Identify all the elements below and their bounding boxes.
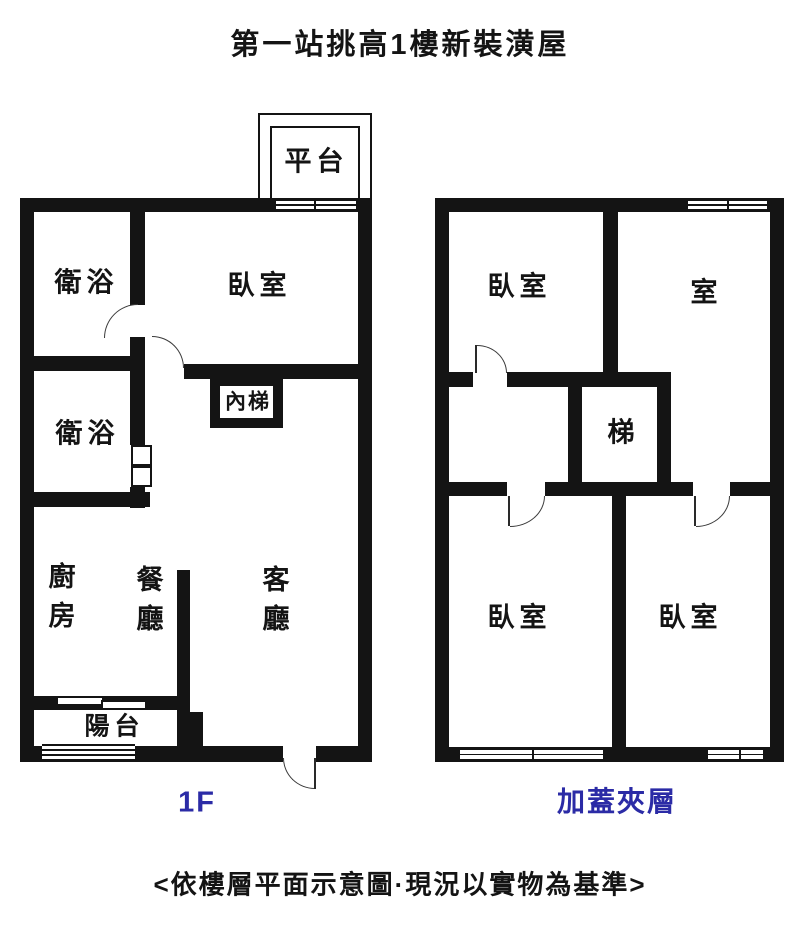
window-mz-top <box>688 199 767 211</box>
wall-dining-living-partition <box>177 570 190 746</box>
balcony-window-pane-left <box>56 696 104 706</box>
wall-mz-bottom-rooms-separator <box>612 496 626 747</box>
window-mz-bottom-left <box>460 748 603 761</box>
room-label-stairs: 梯 <box>603 420 640 447</box>
window-mz-bottom-right <box>708 748 763 761</box>
room-label-balcony: 陽台 <box>79 715 144 740</box>
room-label-living: 客廳 <box>260 565 287 643</box>
wall-between-baths <box>20 356 145 371</box>
door-arc-bedroom-br <box>696 496 730 527</box>
room-label-platform: 平台 <box>280 149 349 176</box>
wall-1f-bottom-right <box>316 746 372 762</box>
stairs-box-right-wall <box>657 387 671 482</box>
wall-partition-step <box>190 712 203 746</box>
floor-label-1f: 1F <box>178 789 216 818</box>
bath-mid-door-jamb-lower <box>131 466 152 487</box>
floorplan-image: 第一站挑高1樓新裝潢屋 平台 內梯 <box>0 0 800 926</box>
room-label-bedroom-1f: 臥室 <box>223 273 292 300</box>
wall-mz-upper-mid <box>507 372 671 387</box>
wall-bath-top-right <box>130 212 145 305</box>
wall-bath-mid-right-upper <box>130 337 145 445</box>
balcony-louver-window <box>42 744 135 761</box>
page-title: 第一站挑高1樓新裝潢屋 <box>230 21 569 63</box>
door-arc-bedroom-bl <box>510 496 545 527</box>
wall-mz-top-rooms-separator <box>603 212 618 372</box>
entry-door-arc <box>283 758 315 789</box>
wall-bath-mid-bottom <box>20 492 150 507</box>
room-label-dining: 餐廳 <box>134 565 161 643</box>
room-label-bedroom-tl: 臥室 <box>483 274 552 301</box>
window-glass-line <box>276 204 356 206</box>
window-divider <box>314 201 316 209</box>
wall-mz-upper-left <box>449 372 473 387</box>
room-label-bedroom-br: 臥室 <box>654 605 723 632</box>
wall-mz-right <box>770 198 784 762</box>
window-1f-top <box>276 199 356 211</box>
bath-mid-door-jamb-upper <box>131 445 152 466</box>
stairs-box-left-wall <box>568 387 582 482</box>
room-label-bath-mid: 衛浴 <box>51 421 120 448</box>
room-label-bedroom-bl: 臥室 <box>483 605 552 632</box>
wall-mz-lower-right <box>730 482 770 496</box>
wall-1f-left <box>20 198 34 762</box>
door-arc-bath-top <box>104 304 138 338</box>
balcony-window-pane-right <box>101 700 147 710</box>
entry-door-leaf <box>314 758 316 789</box>
room-label-bath-top: 衛浴 <box>50 270 119 297</box>
door-arc-bedroom-1f <box>152 336 184 368</box>
window-divider <box>739 750 741 759</box>
room-label-kitchen: 廚房 <box>46 562 73 640</box>
door-arc-bedroom-tl <box>477 345 507 373</box>
wall-mz-left <box>435 198 449 762</box>
disclaimer-caption: <依樓層平面示意圖·現況以實物為基準> <box>153 865 646 902</box>
wall-1f-right <box>358 198 372 762</box>
room-label-room-tr: 室 <box>686 280 723 307</box>
window-divider <box>727 201 729 209</box>
room-label-inner-stairs: 內梯 <box>223 392 271 413</box>
wall-mz-lower-mid <box>545 482 693 496</box>
window-divider <box>532 750 534 759</box>
window-glass-line <box>708 754 763 756</box>
floor-label-mezzanine: 加蓋夾層 <box>557 788 677 816</box>
wall-mz-lower-left <box>449 482 507 496</box>
